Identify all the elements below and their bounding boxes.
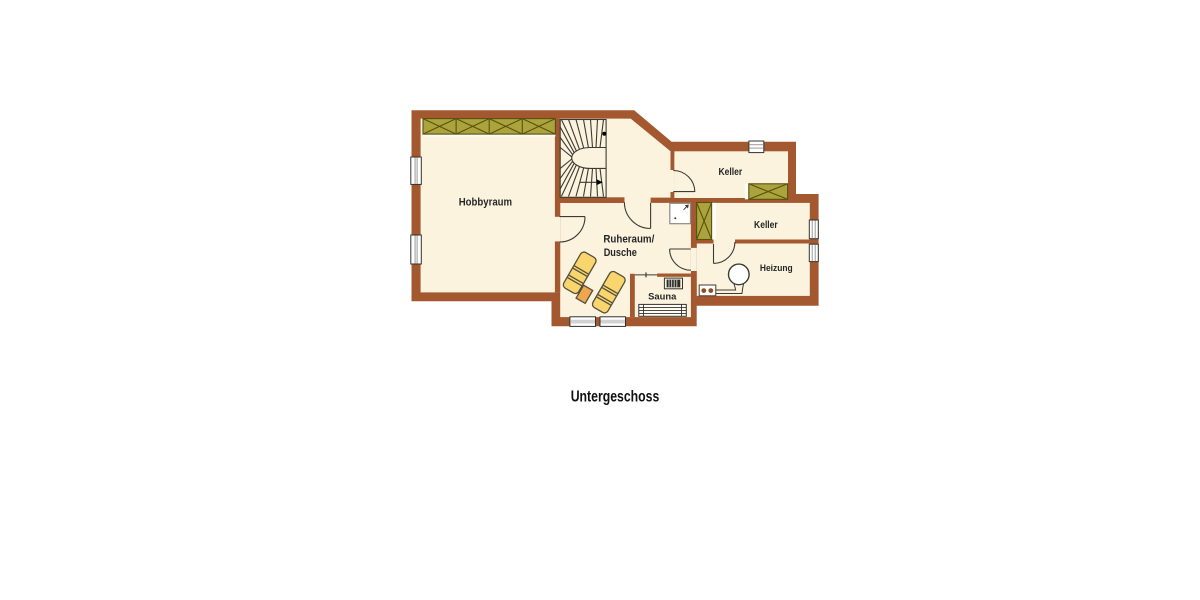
svg-text:Hobbyraum: Hobbyraum xyxy=(459,197,512,209)
svg-text:Keller: Keller xyxy=(754,220,778,231)
svg-text:Sauna: Sauna xyxy=(648,291,677,302)
svg-text:Dusche: Dusche xyxy=(604,247,637,259)
svg-text:Ruheraum/: Ruheraum/ xyxy=(603,234,654,246)
svg-text:Heizung: Heizung xyxy=(760,262,793,273)
svg-text:Keller: Keller xyxy=(718,167,742,178)
svg-text:Untergeschoss: Untergeschoss xyxy=(571,388,660,405)
